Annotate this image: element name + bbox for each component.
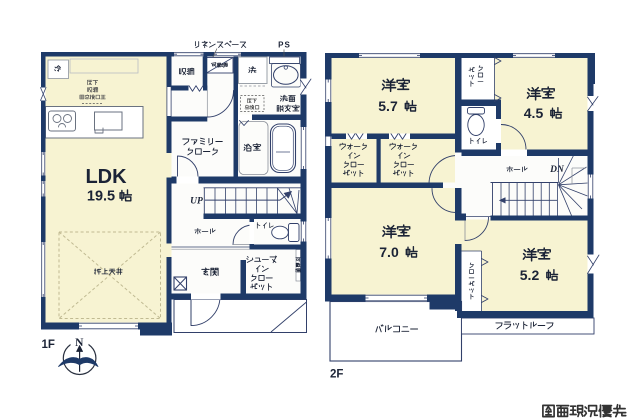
svg-text:DN: DN (549, 165, 565, 175)
svg-text:4.5: 4.5 (524, 105, 544, 121)
svg-text:UP: UP (190, 197, 203, 207)
svg-text:5.2: 5.2 (520, 267, 540, 283)
svg-text:7.0: 7.0 (379, 244, 399, 260)
svg-text:PS: PS (278, 41, 291, 50)
svg-text:2F: 2F (330, 369, 343, 381)
svg-text:5.7: 5.7 (378, 98, 398, 114)
svg-text:19.5: 19.5 (87, 189, 115, 205)
svg-text:LDK: LDK (85, 166, 127, 188)
svg-text:1F: 1F (42, 339, 55, 351)
